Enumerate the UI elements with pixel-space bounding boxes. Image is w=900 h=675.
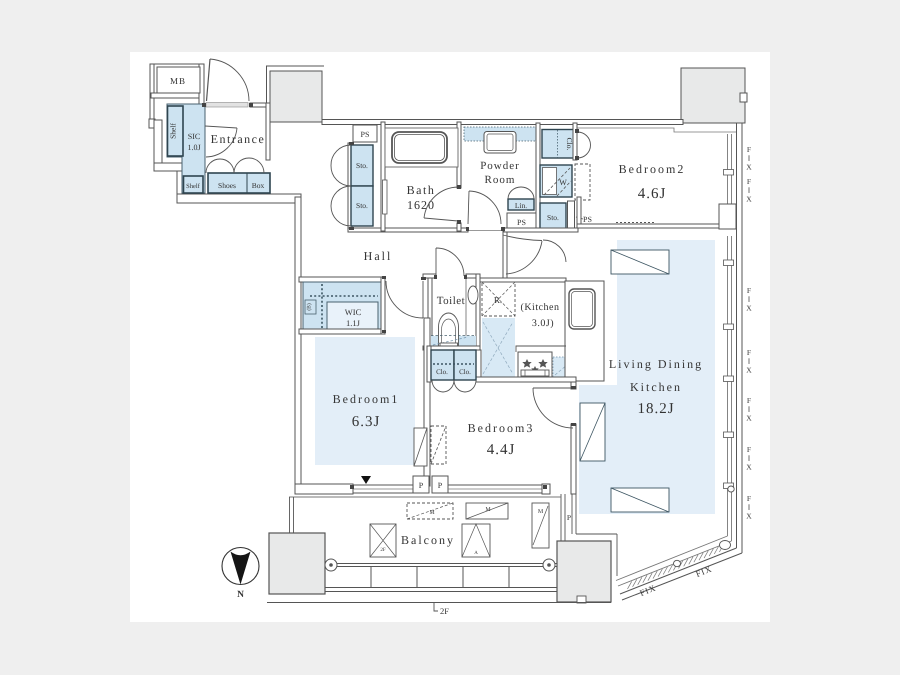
svg-text:1620: 1620 xyxy=(407,198,435,212)
svg-text:R.: R. xyxy=(494,295,502,305)
svg-text:F: F xyxy=(747,494,751,503)
svg-text:Sto.: Sto. xyxy=(356,161,368,170)
svg-text:(B): (B) xyxy=(307,303,313,311)
svg-text:Entrance: Entrance xyxy=(211,132,266,146)
svg-text:N: N xyxy=(237,590,244,600)
svg-text:Kitchen: Kitchen xyxy=(630,380,682,394)
svg-text:M: M xyxy=(429,510,435,516)
svg-text:Living Dining: Living Dining xyxy=(609,357,703,371)
svg-text:18.2J: 18.2J xyxy=(637,401,674,417)
svg-text:Balcony: Balcony xyxy=(401,533,455,547)
svg-text:X: X xyxy=(746,413,752,422)
svg-text:F: F xyxy=(747,348,751,357)
svg-text:F: F xyxy=(747,396,751,405)
svg-text:Hall: Hall xyxy=(364,249,393,263)
svg-text:X: X xyxy=(746,162,752,171)
svg-text:Shelf: Shelf xyxy=(169,123,178,139)
svg-text:F: F xyxy=(747,145,751,154)
svg-text:SIC: SIC xyxy=(188,132,200,141)
svg-text:W: W xyxy=(559,178,567,187)
svg-text:Sto.: Sto. xyxy=(547,213,559,222)
svg-text:1.0J: 1.0J xyxy=(187,143,200,152)
svg-text:Clo.: Clo. xyxy=(436,368,448,376)
svg-text:PS: PS xyxy=(517,218,526,227)
svg-text:2F: 2F xyxy=(380,547,386,553)
svg-text:Clo.: Clo. xyxy=(459,368,471,376)
svg-text:Shoes: Shoes xyxy=(218,181,236,190)
svg-text:WIC: WIC xyxy=(345,307,362,317)
svg-text:4.4J: 4.4J xyxy=(487,442,516,458)
svg-text:F: F xyxy=(747,286,751,295)
svg-text:6.3J: 6.3J xyxy=(352,414,381,430)
svg-text:A: A xyxy=(474,550,478,556)
svg-text:X: X xyxy=(746,303,752,312)
svg-text:1.1J: 1.1J xyxy=(346,318,361,328)
svg-text:Room: Room xyxy=(485,174,516,186)
svg-text:X: X xyxy=(746,511,752,520)
svg-text:Lin.: Lin. xyxy=(515,201,527,210)
svg-text:(Kitchen: (Kitchen xyxy=(521,302,560,313)
svg-text:Shelf: Shelf xyxy=(186,183,201,190)
svg-text:Bath: Bath xyxy=(407,183,436,197)
svg-text:P: P xyxy=(567,513,571,522)
svg-text:F: F xyxy=(747,177,751,186)
svg-text:PS: PS xyxy=(583,215,592,224)
svg-text:P: P xyxy=(419,481,424,490)
svg-text:4.6J: 4.6J xyxy=(638,186,667,202)
svg-text:PS: PS xyxy=(361,130,370,139)
svg-text:Bedroom3: Bedroom3 xyxy=(468,421,535,435)
svg-text:Toilet: Toilet xyxy=(437,295,466,307)
svg-text:Box: Box xyxy=(252,181,265,190)
svg-text:F: F xyxy=(747,445,751,454)
svg-text:2F: 2F xyxy=(440,606,449,616)
svg-text:Bedroom1: Bedroom1 xyxy=(333,392,400,406)
svg-text:Sto.: Sto. xyxy=(356,201,368,210)
svg-text:Bedroom2: Bedroom2 xyxy=(619,162,686,176)
svg-text:MB: MB xyxy=(170,76,186,86)
svg-text:P: P xyxy=(438,481,443,490)
svg-text:3.0J): 3.0J) xyxy=(532,318,554,329)
svg-text:X: X xyxy=(746,365,752,374)
svg-text:M: M xyxy=(485,507,491,513)
svg-text:X: X xyxy=(746,462,752,471)
svg-text:M: M xyxy=(538,509,544,515)
svg-text:X: X xyxy=(746,194,752,203)
svg-text:Powder: Powder xyxy=(480,160,520,172)
